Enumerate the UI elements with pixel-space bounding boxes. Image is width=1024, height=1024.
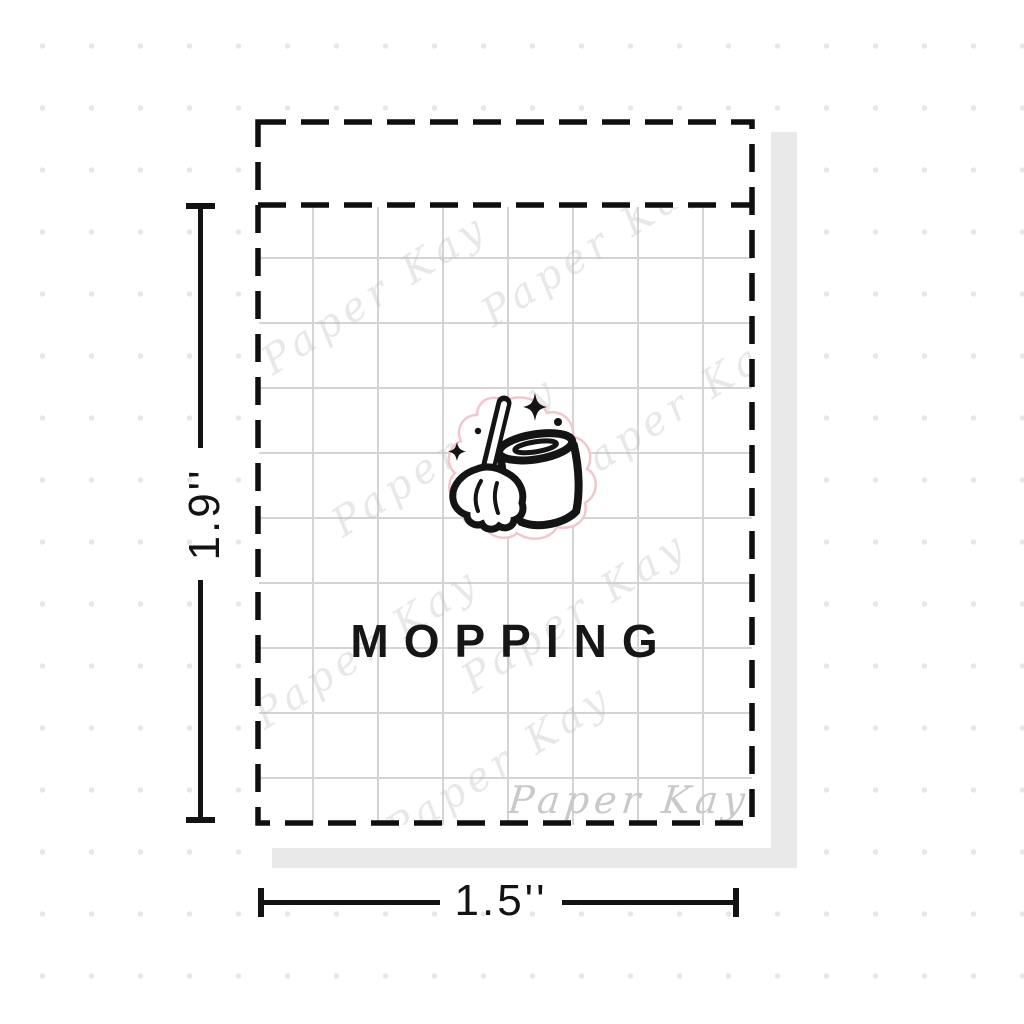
height-dimension-cap-top — [186, 203, 215, 209]
watermark-tile: Paper Kay — [473, 207, 716, 336]
height-dimension-cap-bottom — [186, 817, 215, 823]
sticker-sheet: Paper Kay Paper Kay Paper Kay Paper Kay … — [246, 112, 771, 848]
sticker-name-label: MOPPING — [259, 614, 752, 668]
width-dimension-cap-right — [733, 888, 739, 917]
width-dimension-line-right — [562, 900, 737, 905]
width-dimension-line-left — [261, 900, 440, 905]
width-dimension-label: 1.5'' — [455, 876, 548, 926]
height-dimension-label: 1.9'' — [180, 468, 230, 561]
sparkle-dot — [475, 428, 481, 434]
width-dimension-cap-left — [258, 888, 264, 917]
watermark-tile: Paper Kay — [259, 207, 497, 384]
brand-watermark: Paper Kay — [506, 778, 752, 822]
sticker-grid-area: Paper Kay Paper Kay Paper Kay Paper Kay … — [259, 207, 752, 825]
height-dimension-line-lower — [198, 580, 203, 823]
sparkle-dot — [554, 418, 562, 426]
height-dimension-line-upper — [198, 205, 203, 448]
watermark-tile: Paper Kay — [453, 522, 696, 702]
sticker-product-diagram: Paper Kay Paper Kay Paper Kay Paper Kay … — [0, 0, 1024, 1024]
mop-bucket-icon — [445, 389, 609, 545]
